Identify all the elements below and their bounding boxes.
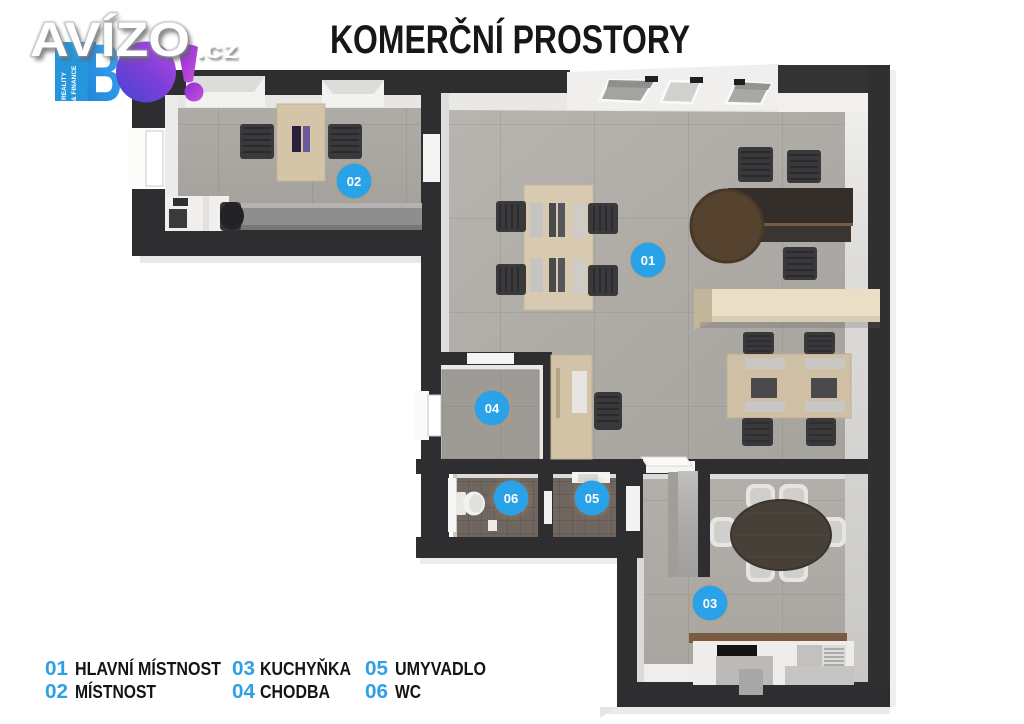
svg-text:06: 06: [365, 681, 388, 703]
svg-text:REALITY: REALITY: [61, 72, 68, 100]
svg-text:03: 03: [703, 596, 717, 611]
svg-text:.cz: .cz: [196, 37, 238, 64]
svg-text:03: 03: [232, 658, 255, 680]
svg-text:HLAVNÍ MÍSTNOST: HLAVNÍ MÍSTNOST: [75, 658, 221, 679]
svg-text:KUCHYŇKA: KUCHYŇKA: [260, 658, 351, 679]
svg-text:MÍSTNOST: MÍSTNOST: [75, 681, 156, 702]
svg-text:WC: WC: [395, 682, 421, 702]
svg-text:05: 05: [365, 658, 388, 680]
svg-text:04: 04: [232, 681, 256, 703]
svg-text:AVÍZO: AVÍZO: [30, 13, 190, 67]
svg-text:01: 01: [641, 253, 655, 268]
svg-text:01: 01: [45, 658, 68, 680]
svg-text:06: 06: [504, 491, 518, 506]
svg-text:02: 02: [45, 681, 68, 703]
svg-text:KOMERČNÍ PROSTORY: KOMERČNÍ PROSTORY: [330, 16, 690, 62]
svg-text:02: 02: [347, 174, 361, 189]
svg-text:UMYVADLO: UMYVADLO: [395, 659, 486, 679]
svg-text:CHODBA: CHODBA: [260, 682, 330, 702]
svg-text:04: 04: [485, 401, 500, 416]
svg-text:05: 05: [585, 491, 599, 506]
